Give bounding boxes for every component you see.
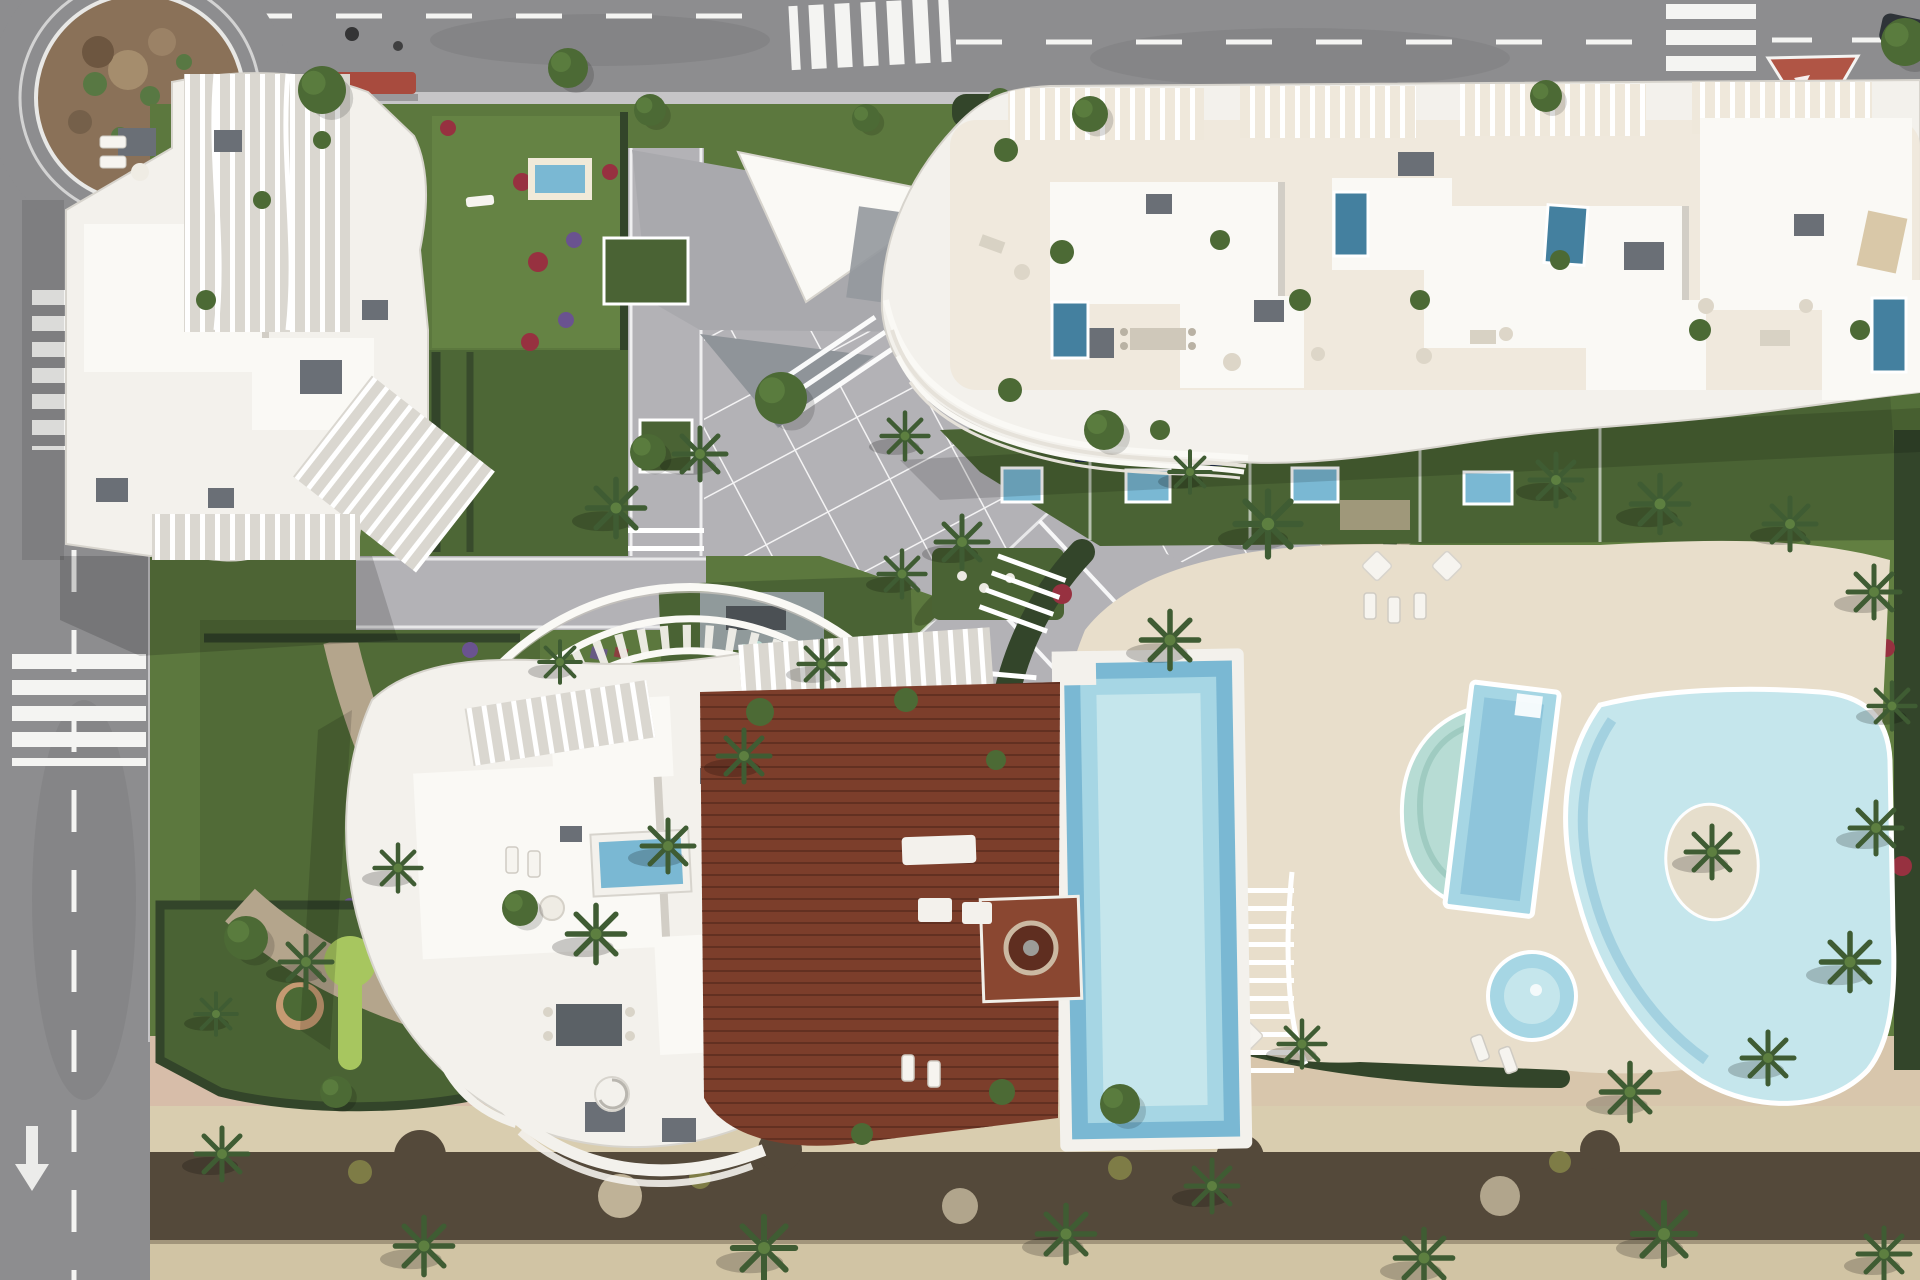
terrace-fins-bottom bbox=[152, 514, 360, 560]
crosswalk bbox=[788, 0, 951, 70]
garden-pool bbox=[535, 165, 585, 193]
kids-pool bbox=[1488, 952, 1576, 1040]
aerial-render bbox=[0, 0, 1920, 1280]
building-b bbox=[882, 80, 1920, 500]
wooden-deck bbox=[700, 682, 1082, 1146]
site-plan-svg bbox=[0, 0, 1920, 1280]
private-pool-c bbox=[1052, 648, 1253, 1151]
spiral-stair bbox=[595, 1077, 629, 1111]
crosswalk bbox=[12, 650, 146, 766]
